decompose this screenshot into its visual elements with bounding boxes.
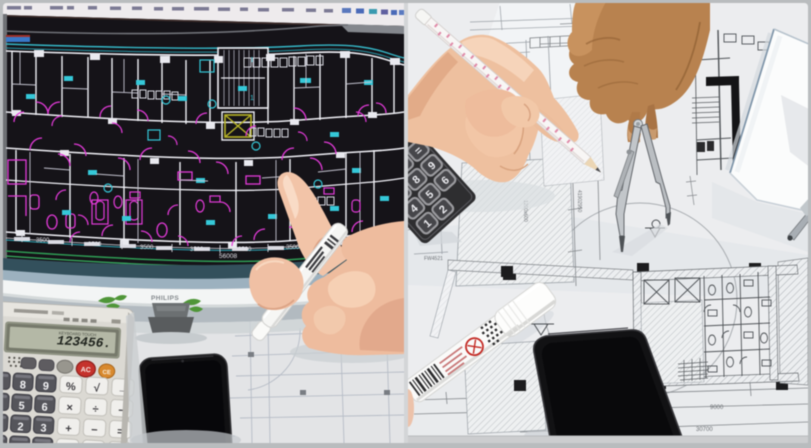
svg-text:2: 2 xyxy=(17,421,24,433)
svg-text:%: % xyxy=(66,381,77,394)
svg-text:56008: 56008 xyxy=(219,253,237,260)
svg-text:3500: 3500 xyxy=(88,242,102,248)
svg-text:6: 6 xyxy=(41,401,48,413)
svg-text:AC: AC xyxy=(81,367,91,375)
svg-text:+: + xyxy=(65,423,72,435)
svg-text:FW4521: FW4521 xyxy=(424,256,443,262)
svg-text:3500: 3500 xyxy=(140,245,154,251)
svg-text:3500: 3500 xyxy=(36,238,50,244)
svg-text:−: − xyxy=(91,424,98,436)
svg-text:3500: 3500 xyxy=(190,247,204,253)
svg-text:÷: ÷ xyxy=(92,403,99,415)
svg-text:3: 3 xyxy=(40,422,47,434)
svg-text:×: × xyxy=(66,402,73,414)
svg-text:3500: 3500 xyxy=(286,245,300,251)
svg-text:1: 1 xyxy=(250,95,254,102)
svg-text:30700: 30700 xyxy=(696,427,713,433)
svg-text:9000: 9000 xyxy=(710,405,724,411)
svg-text:9: 9 xyxy=(42,381,49,393)
svg-text:41902950: 41902950 xyxy=(576,190,582,212)
svg-text:CE: CE xyxy=(102,370,111,376)
svg-text:3500: 3500 xyxy=(238,247,252,253)
svg-text:8: 8 xyxy=(19,379,26,391)
svg-text:PHILIPS: PHILIPS xyxy=(151,295,179,302)
svg-text:5: 5 xyxy=(18,400,25,412)
